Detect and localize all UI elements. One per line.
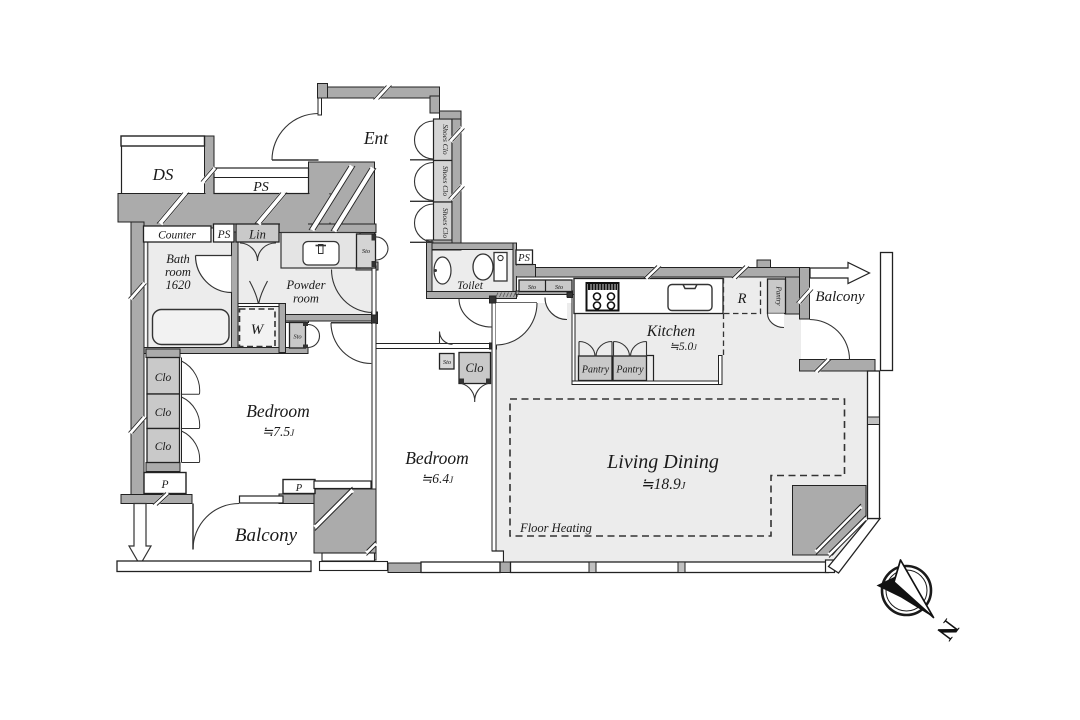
svg-text:room: room: [293, 292, 319, 306]
svg-text:Clo: Clo: [155, 372, 172, 384]
svg-text:DS: DS: [152, 165, 174, 184]
svg-text:Shoes Clo: Shoes Clo: [441, 166, 450, 196]
svg-text:Ent: Ent: [363, 128, 389, 148]
svg-text:P: P: [160, 479, 168, 491]
svg-text:Pantry: Pantry: [775, 285, 783, 306]
svg-text:Balcony: Balcony: [815, 289, 864, 305]
svg-text:Pantry: Pantry: [615, 365, 644, 376]
svg-text:1620: 1620: [166, 278, 192, 292]
svg-text:Shoes Clo: Shoes Clo: [441, 124, 450, 154]
svg-text:Sto: Sto: [362, 248, 371, 255]
svg-text:Sto: Sto: [443, 359, 452, 366]
svg-text:PS: PS: [252, 180, 269, 195]
svg-text:Bedroom: Bedroom: [246, 401, 310, 421]
svg-text:PS: PS: [517, 253, 530, 264]
svg-text:Sto: Sto: [528, 284, 537, 291]
svg-text:room: room: [165, 265, 191, 279]
svg-text:Bath: Bath: [166, 252, 190, 266]
svg-text:P: P: [295, 483, 303, 494]
svg-text:Balcony: Balcony: [235, 525, 298, 546]
svg-text:Bedroom: Bedroom: [405, 448, 469, 468]
svg-text:Floor Heating: Floor Heating: [519, 521, 592, 535]
svg-text:≒18.9J: ≒18.9J: [641, 476, 687, 493]
svg-text:Powder: Powder: [286, 278, 326, 292]
svg-text:Living Dining: Living Dining: [606, 451, 719, 473]
svg-text:Kitchen: Kitchen: [646, 323, 695, 340]
svg-text:W: W: [251, 322, 265, 338]
svg-text:Pantry: Pantry: [581, 365, 610, 376]
svg-text:≒5.0J: ≒5.0J: [669, 341, 697, 353]
svg-text:Shoes Clo: Shoes Clo: [441, 208, 450, 238]
svg-text:Counter: Counter: [158, 230, 196, 242]
svg-text:Clo: Clo: [155, 407, 172, 419]
svg-text:Clo: Clo: [465, 361, 483, 375]
svg-text:Sto: Sto: [555, 284, 564, 291]
svg-text:PS: PS: [217, 229, 231, 241]
svg-text:Toilet: Toilet: [457, 280, 484, 292]
svg-text:Sto: Sto: [293, 334, 302, 341]
svg-text:Clo: Clo: [155, 441, 172, 453]
svg-text:Lin: Lin: [248, 228, 266, 242]
svg-text:R: R: [737, 291, 747, 307]
